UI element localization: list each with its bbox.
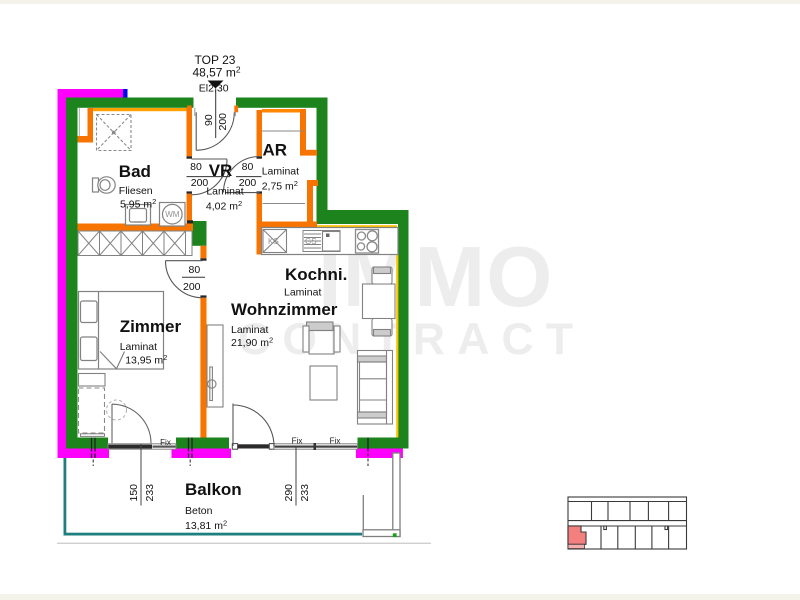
svg-text:Beton: Beton	[185, 505, 213, 517]
svg-text:90: 90	[203, 114, 215, 126]
svg-text:80: 80	[242, 161, 254, 173]
svg-text:VR: VR	[209, 161, 233, 180]
svg-text:Kochni.: Kochni.	[285, 265, 347, 284]
svg-text:Zimmer: Zimmer	[120, 317, 182, 336]
svg-text:WM: WM	[165, 210, 180, 219]
svg-text:80: 80	[190, 161, 202, 173]
svg-text:21,90 m2: 21,90 m2	[231, 336, 273, 350]
svg-text:Bad: Bad	[119, 162, 151, 181]
svg-text:KS: KS	[268, 237, 279, 246]
svg-text:Fix: Fix	[330, 437, 341, 446]
svg-text:Balkon: Balkon	[185, 480, 242, 499]
svg-text:5,95 m2: 5,95 m2	[120, 197, 156, 211]
svg-text:CONTRACT: CONTRACT	[238, 315, 585, 364]
svg-text:233: 233	[144, 484, 156, 502]
svg-text:200: 200	[183, 281, 201, 293]
svg-text:Laminat: Laminat	[284, 287, 321, 299]
svg-text:233: 233	[299, 484, 311, 502]
svg-text:2,75 m2: 2,75 m2	[262, 179, 298, 193]
svg-text:4,02 m2: 4,02 m2	[206, 199, 242, 213]
svg-text:200: 200	[217, 113, 229, 131]
svg-text:290: 290	[283, 484, 295, 502]
svg-text:Fliesen: Fliesen	[119, 185, 153, 197]
svg-text:48,57 m2: 48,57 m2	[192, 65, 240, 80]
svg-text:Laminat: Laminat	[206, 186, 243, 198]
svg-text:AR: AR	[263, 141, 288, 160]
svg-text:13,95 m2: 13,95 m2	[125, 353, 167, 367]
svg-text:80: 80	[189, 264, 201, 276]
svg-text:Wohnzimmer: Wohnzimmer	[231, 300, 338, 319]
svg-text:Laminat: Laminat	[262, 166, 299, 178]
svg-text:Fix: Fix	[292, 437, 303, 446]
svg-text:Fix: Fix	[160, 438, 171, 447]
svg-text:TOP 23: TOP 23	[195, 53, 236, 67]
svg-text:Laminat: Laminat	[231, 324, 268, 336]
svg-text:GS: GS	[305, 237, 317, 246]
svg-text:13,81 m2: 13,81 m2	[185, 518, 227, 532]
svg-text:150: 150	[128, 484, 140, 502]
svg-text:Laminat: Laminat	[120, 341, 157, 353]
